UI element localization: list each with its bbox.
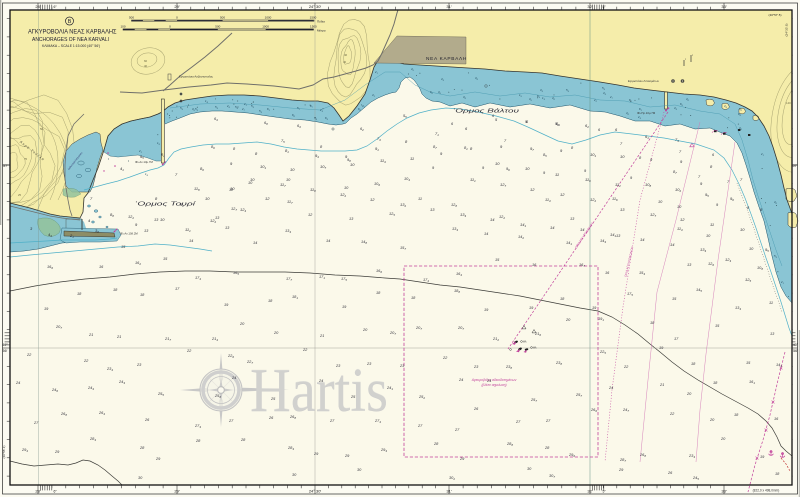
svg-text:10: 10 [230,186,235,191]
svg-text:27: 27 [33,420,39,425]
svg-text:28: 28 [139,445,145,450]
svg-text:140: 140 [786,101,791,105]
svg-text:(βλέπε σημείωση): (βλέπε σημείωση) [481,383,506,387]
svg-text:26: 26 [268,415,274,420]
svg-text:23: 23 [473,364,479,369]
svg-text:ΚΛΙΜΑΚΑ – SCALE 1:15.000 (40°: ΚΛΙΜΑΚΑ – SCALE 1:15.000 (40° 56′) [42,44,100,48]
svg-text:28′: 28′ [35,4,40,9]
svg-text:25: 25 [18,193,22,197]
svg-text:500: 500 [215,24,220,28]
svg-text:29: 29 [459,456,465,461]
svg-text:500: 500 [129,16,134,20]
svg-text:13: 13 [620,207,625,212]
svg-text:40: 40 [343,60,347,64]
svg-text:27: 27 [545,418,551,423]
svg-text:(40°57′.5): (40°57′.5) [769,13,782,17]
svg-text:1500: 1500 [310,16,317,20]
svg-text:100: 100 [120,24,125,28]
svg-text:24: 24 [231,375,237,380]
svg-text:11: 11 [710,222,714,227]
svg-text:24: 24 [608,385,614,390]
svg-text:14: 14 [670,242,675,247]
svg-text:40°: 40° [793,343,799,347]
svg-text:57′: 57′ [793,164,798,168]
svg-text:Φλ.Αν.13μ.7Μ: Φλ.Αν.13μ.7Μ [135,160,153,164]
svg-text:ANCHORAGES OF NEA KARVALI: ANCHORAGES OF NEA KARVALI [32,37,109,43]
svg-text:14: 14 [640,237,645,242]
svg-text:10: 10 [160,217,165,222]
svg-text:1000: 1000 [265,16,272,20]
svg-text:12: 12 [370,197,375,202]
svg-text:50: 50 [40,127,44,131]
svg-text:22: 22 [83,358,89,363]
svg-text:14: 14 [550,225,555,230]
svg-text:27: 27 [228,418,234,423]
svg-text:24: 24 [458,377,464,382]
svg-text:29: 29 [313,451,319,456]
svg-text:᾿Ορμος Βάλτου: ᾿Ορμος Βάλτου [452,109,519,115]
svg-text:11: 11 [410,156,414,161]
svg-text:12: 12 [265,196,270,201]
svg-text:20: 20 [273,330,279,335]
svg-text:24° 30′: 24° 30′ [309,489,322,494]
svg-text:24: 24 [15,380,21,385]
svg-text:Αγκυροβόλιο αδειοδοτημένων: Αγκυροβόλιο αδειοδοτημένων [471,378,517,382]
svg-text:Πόδια: Πόδια [317,20,325,24]
svg-text:27: 27 [417,423,423,428]
svg-text:26: 26 [144,417,150,422]
svg-text:27: 27 [454,427,460,432]
svg-text:ΝΕΑ ΚΑΡΒΑΛΗ: ΝΕΑ ΚΑΡΒΑΛΗ [426,56,467,61]
svg-text:75: 75 [24,157,28,161]
svg-text:10: 10 [740,227,745,232]
svg-text:20: 20 [362,327,368,332]
svg-text:20: 20 [709,417,715,422]
svg-text:12: 12 [560,192,565,197]
svg-text:B: B [68,19,72,25]
svg-text:29: 29 [618,467,624,472]
svg-text:ΑΓΚΥΡΟΒΟΛΙΑ ΝΕΑΣ ΚΑΡΒΑΛΗΣ: ΑΓΚΥΡΟΒΟΛΙΑ ΝΕΑΣ ΚΑΡΒΑΛΗΣ [28,29,117,36]
svg-text:22: 22 [442,355,448,360]
svg-text:24: 24 [318,378,324,383]
svg-text:33′: 33′ [721,489,726,494]
svg-text:56′: 56′ [793,349,798,353]
svg-text:28′: 28′ [35,489,40,494]
svg-text:11: 11 [418,196,422,201]
svg-text:1000: 1000 [262,24,269,28]
svg-text:10: 10 [620,154,625,159]
svg-text:13: 13 [430,207,435,212]
svg-text:21: 21 [659,382,664,387]
svg-text:31′: 31′ [446,4,451,9]
svg-text:32′: 32′ [587,489,592,494]
svg-text:1500: 1500 [310,24,317,28]
svg-text:21: 21 [319,333,324,338]
svg-text:22: 22 [669,411,675,416]
svg-text:22: 22 [26,352,32,357]
svg-text:Εργοστάσια Ασβεστοποιΐας: Εργοστάσια Ασβεστοποιΐας [179,75,213,79]
svg-text:20: 20 [239,321,245,326]
svg-text:10: 10 [350,162,355,167]
svg-text:28: 28 [240,437,246,442]
svg-text:10: 10 [290,167,295,172]
svg-text:29′: 29′ [174,489,179,494]
svg-text:22: 22 [302,347,308,352]
svg-text:10: 10 [495,161,500,166]
svg-text:29: 29 [155,456,161,461]
svg-text:14: 14 [490,217,495,222]
svg-text:25: 25 [350,394,356,399]
svg-text:26: 26 [473,406,479,411]
svg-text:11: 11 [555,172,559,177]
svg-text:33′: 33′ [721,4,726,9]
svg-text:(24°33′.6): (24°33′.6) [785,24,789,37]
svg-text:25: 25 [270,396,276,401]
svg-text:26: 26 [667,470,673,475]
svg-text:23: 23 [136,362,142,367]
svg-text:᾿Ορμος Τουρί: ᾿Ορμος Τουρί [134,202,197,208]
svg-text:23: 23 [399,363,405,368]
svg-text:21: 21 [116,334,121,339]
svg-text:22: 22 [623,364,629,369]
svg-text:57′: 57′ [3,164,8,168]
svg-text:Μέτρα: Μέτρα [317,28,326,32]
svg-text:32′: 32′ [587,4,592,9]
svg-text:40: 40 [144,64,148,68]
svg-text:14: 14 [580,227,585,232]
svg-text:12: 12 [530,187,535,192]
svg-text:10: 10 [525,166,530,171]
svg-text:29: 29 [54,449,60,454]
svg-text:28: 28 [433,441,439,446]
svg-text:29′: 29′ [174,4,179,9]
svg-text:(822,0 x 498,0mm): (822,0 x 498,0mm) [753,489,780,493]
svg-text:56′: 56′ [3,349,8,353]
svg-text:28: 28 [195,438,201,443]
svg-text:20: 20 [565,317,571,322]
svg-text:27: 27 [515,419,521,424]
svg-text:24° 30′: 24° 30′ [309,4,322,9]
svg-text:31′: 31′ [446,489,451,494]
svg-text:11: 11 [769,300,773,305]
svg-text:28: 28 [544,445,550,450]
svg-text:24: 24 [486,378,492,383]
svg-text:23: 23 [335,363,341,368]
svg-text:12: 12 [680,217,685,222]
svg-text:29: 29 [344,453,350,458]
svg-text:(40°55′.1): (40°55′.1) [2,446,6,459]
svg-text:10: 10 [205,196,210,201]
svg-text:20: 20 [686,391,692,396]
svg-text:23: 23 [366,361,372,366]
svg-text:10: 10 [250,177,255,182]
svg-text:27: 27 [329,418,335,423]
svg-text:20: 20 [720,436,726,441]
svg-text:500: 500 [220,16,225,20]
svg-text:21: 21 [88,332,93,337]
svg-text:Εργοστάσιο Λιπασμάτων: Εργοστάσιο Λιπασμάτων [628,79,660,83]
svg-text:Φλ.Αν.10δ.2Μ: Φλ.Αν.10δ.2Μ [120,232,138,236]
svg-text:22: 22 [186,348,192,353]
svg-text:40°: 40° [2,343,8,347]
svg-text:46: 46 [344,53,348,57]
svg-text:60: 60 [144,59,148,63]
